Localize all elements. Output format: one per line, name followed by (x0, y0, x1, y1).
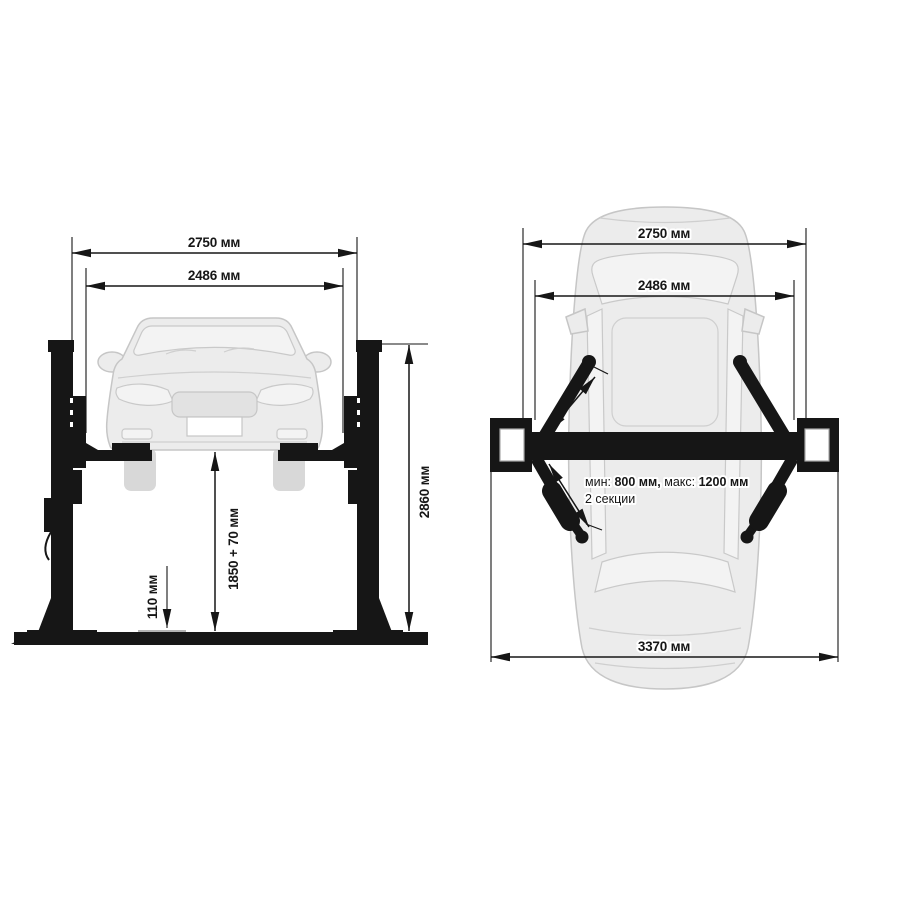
lift-technical-diagram: 2750 мм 2486 мм 2860 мм 1850 + 70 мм 110… (0, 0, 900, 900)
lift-pad-front-left (112, 443, 150, 451)
swing-arm-pad-rear-left (576, 531, 589, 544)
front-dim-pad-height-label: 110 мм (145, 575, 160, 620)
arm-reach-min-label: мин: (585, 475, 611, 489)
front-dim-width-outer-label: 2750 мм (188, 235, 241, 250)
arm-reach-label: мин: 800 мм, макс: 1200 мм (585, 475, 748, 489)
swing-arm-pad-rear-right (741, 531, 754, 544)
lift-arm-front-right (278, 450, 356, 461)
front-view: 2750 мм 2486 мм 2860 мм 1850 + 70 мм 110… (11, 235, 432, 645)
front-dim-lift-height-label: 1850 + 70 мм (226, 508, 241, 590)
lift-arm-front-left (74, 450, 152, 461)
post-section-right (805, 429, 829, 461)
top-dim-width-outer-label: 2750 мм (638, 226, 691, 241)
car-foglight-right (277, 429, 307, 439)
arm-reach-max-value: 1200 мм (699, 475, 749, 489)
top-view: 2750 мм 2486 мм 3370 мм мин: 800 мм, мак… (490, 207, 839, 689)
car-top-mirror-right (742, 309, 764, 334)
lift-pad-front-right (280, 443, 318, 451)
ground-line (14, 632, 428, 645)
front-dim-height-label: 2860 мм (417, 466, 432, 519)
hydraulic-hose (45, 532, 51, 560)
swing-arm-rear-left-sleeve (552, 491, 570, 521)
car-top-mirror-left (566, 309, 588, 334)
top-dim-overall-length-label: 3370 мм (638, 639, 691, 654)
car-license-plate (187, 417, 242, 436)
top-dim-width-inner-label: 2486 мм (638, 278, 691, 293)
diagram-canvas: 2750 мм 2486 мм 2860 мм 1850 + 70 мм 110… (0, 0, 900, 900)
crossbeam (532, 432, 797, 460)
front-dim-width-inner-label: 2486 мм (188, 268, 241, 283)
power-unit (44, 498, 58, 532)
car-foglight-left (122, 429, 152, 439)
arm-reach-max-label: макс: (664, 475, 695, 489)
post-section-left (500, 429, 524, 461)
car-grille (172, 392, 257, 417)
swing-arm-pad-front-right (733, 355, 747, 369)
arm-reach-min-value: 800 мм, (614, 475, 660, 489)
swing-arm-rear-right-sleeve (759, 491, 777, 521)
arm-sections-label: 2 секции (585, 492, 635, 506)
